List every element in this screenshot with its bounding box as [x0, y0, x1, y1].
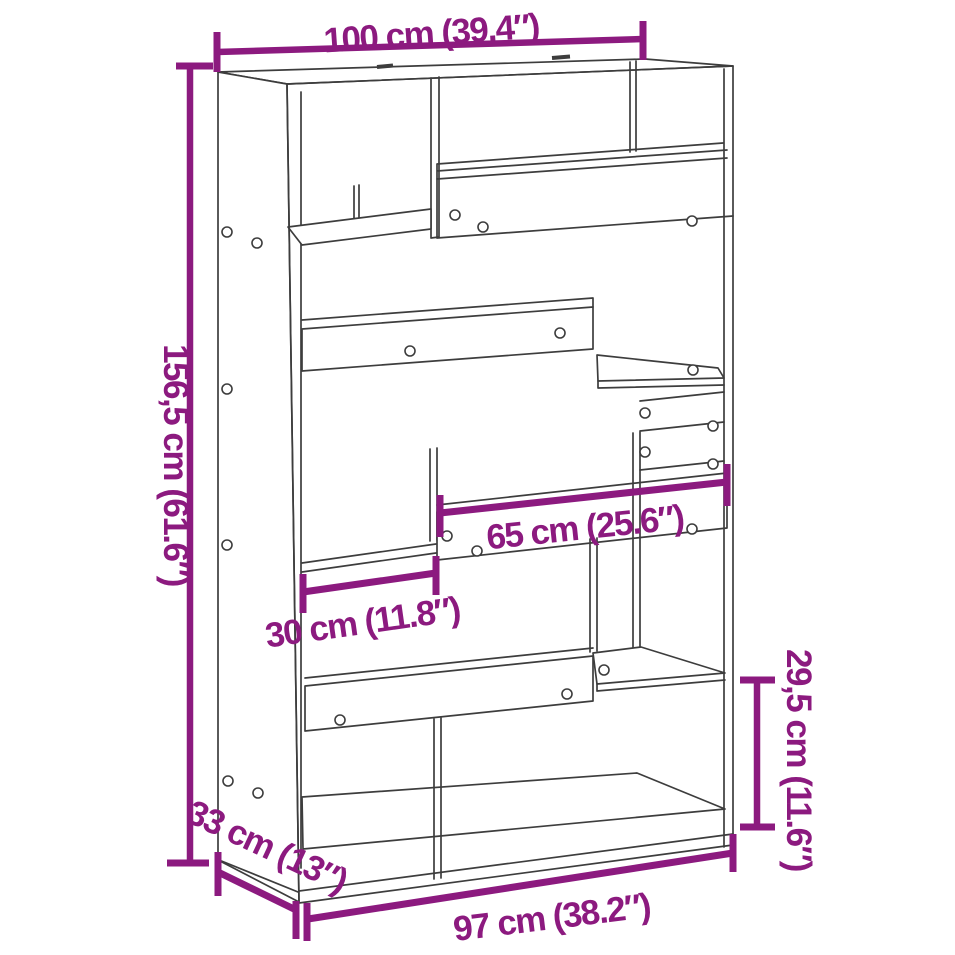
diagram-canvas: 100 cm (39.4″) 156,5 cm (61.6″) 65 cm (2…: [0, 0, 955, 955]
dimension-compartment-height-right-label: 29,5 cm (11.6″): [779, 649, 818, 871]
bottom-floor-panel: [302, 773, 725, 849]
dimension-height-left: 156,5 cm (61.6″): [156, 66, 213, 863]
shelf-30-edge: [302, 544, 436, 572]
divider-line: [630, 61, 636, 152]
top-connector-mark: [377, 66, 393, 68]
dimension-line: [303, 573, 436, 592]
top-connector-mark: [552, 57, 570, 59]
bookcase-drawing: [218, 57, 733, 904]
case-top-face: [218, 59, 733, 84]
dimension-width-top-label: 100 cm (39.4″): [322, 7, 540, 61]
divider-line: [430, 448, 437, 541]
divider-line: [354, 185, 359, 222]
shelf-mid-right: [597, 355, 724, 381]
shelf-top-right: [437, 143, 727, 179]
bookcase-dimension-diagram: 100 cm (39.4″) 156,5 cm (61.6″) 65 cm (2…: [0, 0, 955, 955]
divider-line: [590, 538, 597, 652]
dimension-width-bottom: 97 cm (38.2″): [307, 834, 733, 949]
dimension-height-left-label: 156,5 cm (61.6″): [156, 344, 195, 586]
back-panel-lower-left: [305, 656, 593, 731]
dimension-compartment-height-right: 29,5 cm (11.6″): [740, 649, 818, 871]
shelf-lower-right: [593, 647, 725, 684]
shelf-mid-right-front-band: [598, 381, 724, 388]
